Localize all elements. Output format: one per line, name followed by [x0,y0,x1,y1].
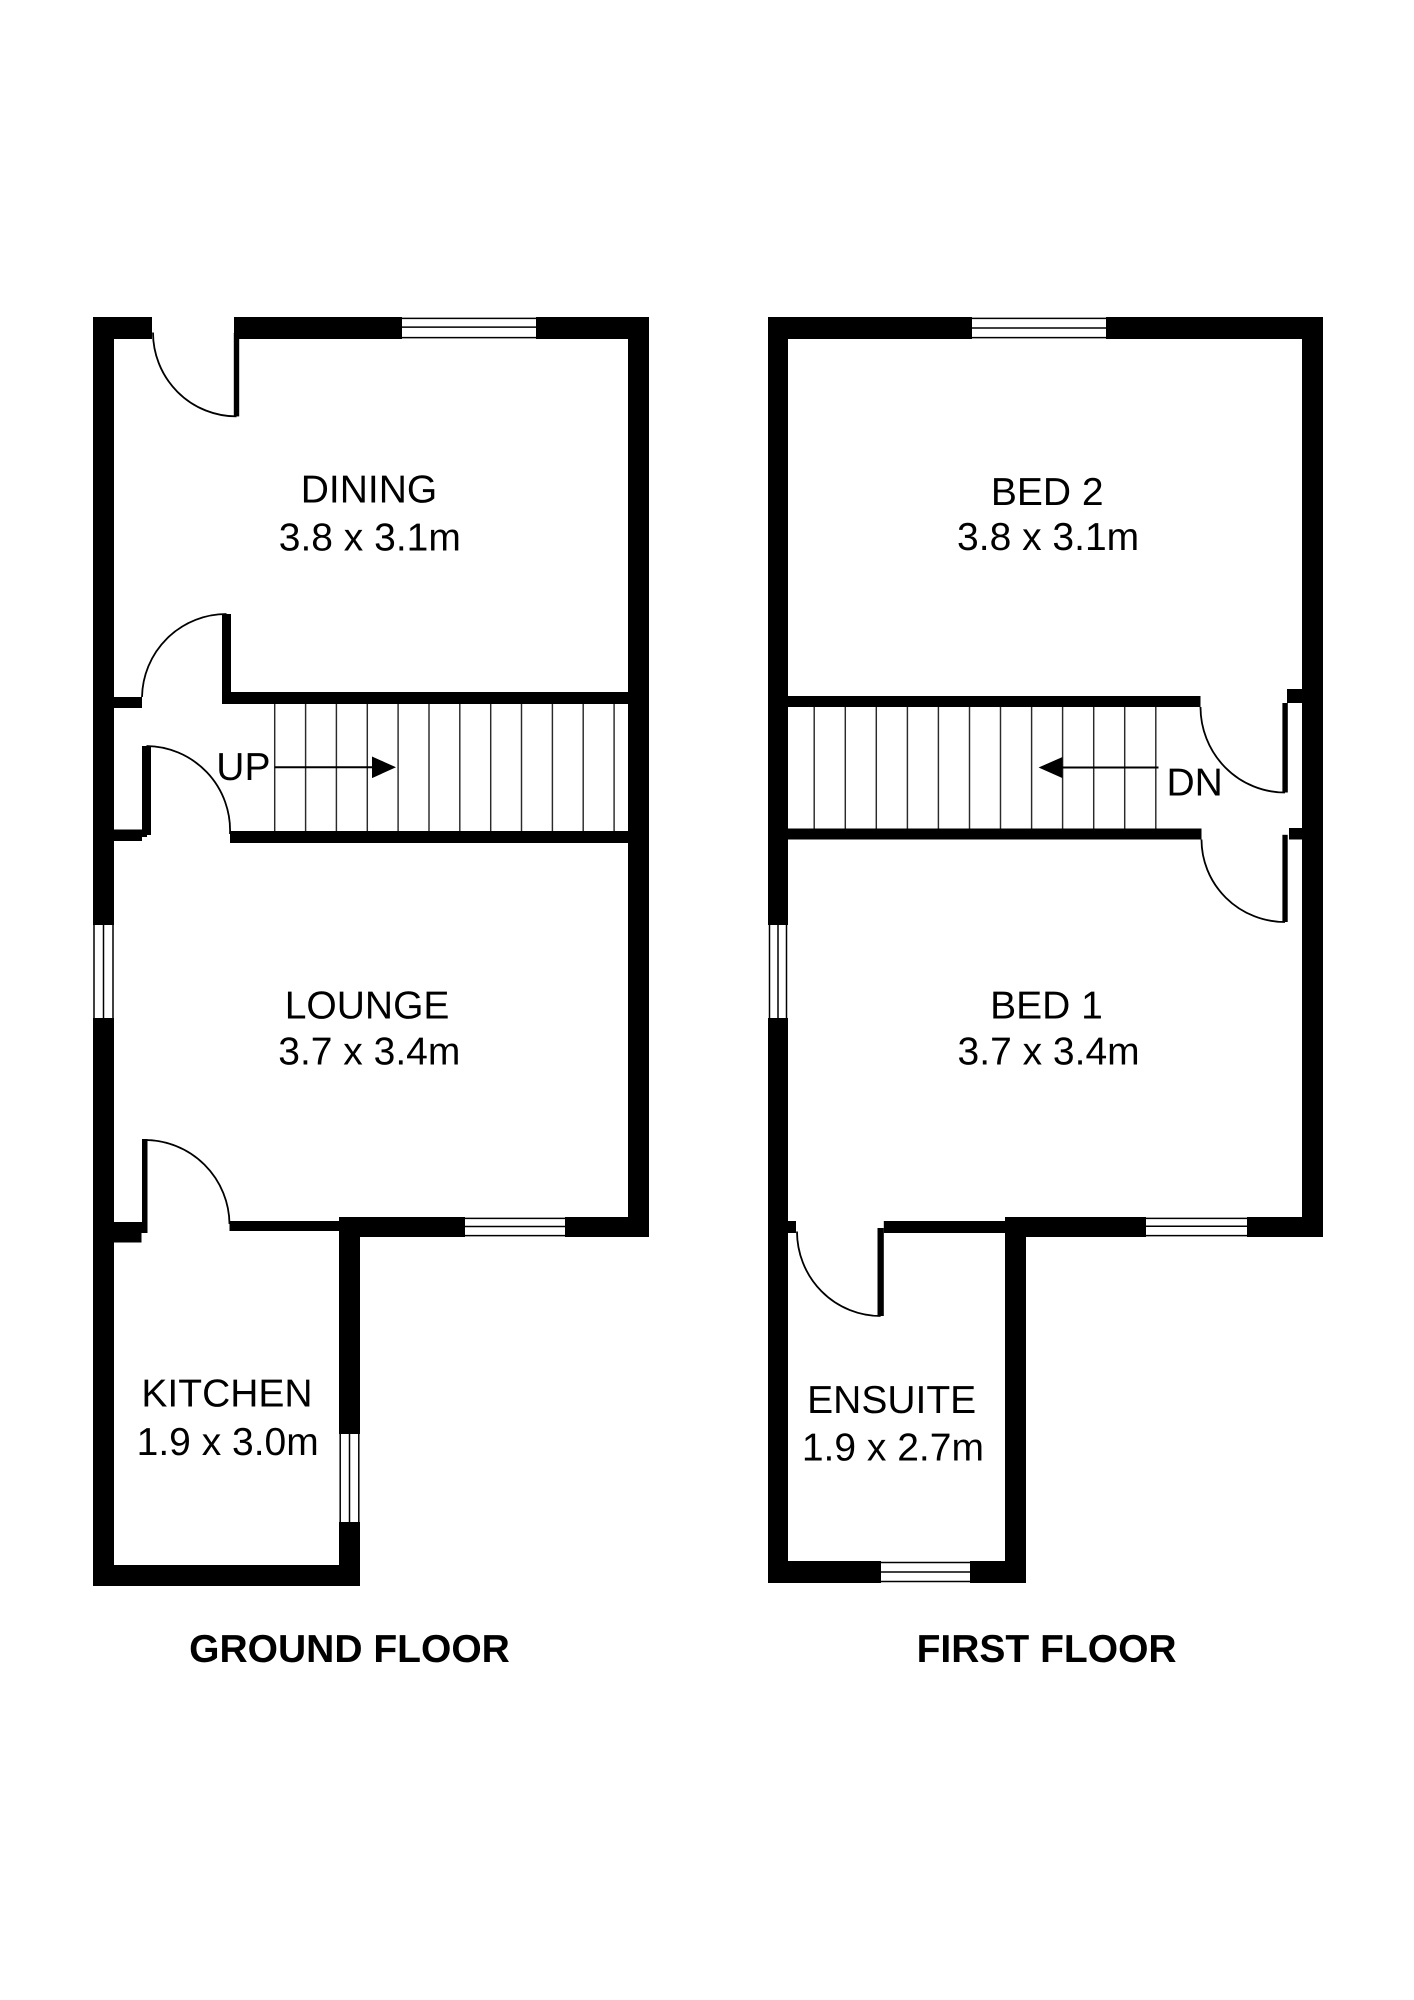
svg-text:ENSUITE: ENSUITE [807,1379,976,1422]
svg-text:GROUND FLOOR: GROUND FLOOR [189,1628,510,1671]
svg-text:3.7 x 3.4m: 3.7 x 3.4m [958,1030,1140,1073]
svg-text:DINING: DINING [301,469,438,512]
svg-text:LOUNGE: LOUNGE [285,984,450,1027]
svg-text:3.8 x 3.1m: 3.8 x 3.1m [279,516,461,559]
svg-text:KITCHEN: KITCHEN [141,1373,312,1416]
svg-text:1.9 x 2.7m: 1.9 x 2.7m [802,1427,984,1470]
svg-text:UP: UP [216,746,270,789]
svg-text:3.7 x 3.4m: 3.7 x 3.4m [278,1030,460,1073]
svg-text:DN: DN [1167,762,1223,805]
svg-text:BED 2: BED 2 [991,471,1104,514]
svg-text:3.8 x 3.1m: 3.8 x 3.1m [957,516,1139,559]
svg-text:1.9 x 3.0m: 1.9 x 3.0m [137,1421,319,1464]
svg-text:BED 1: BED 1 [990,984,1103,1027]
svg-text:FIRST FLOOR: FIRST FLOOR [917,1628,1177,1671]
